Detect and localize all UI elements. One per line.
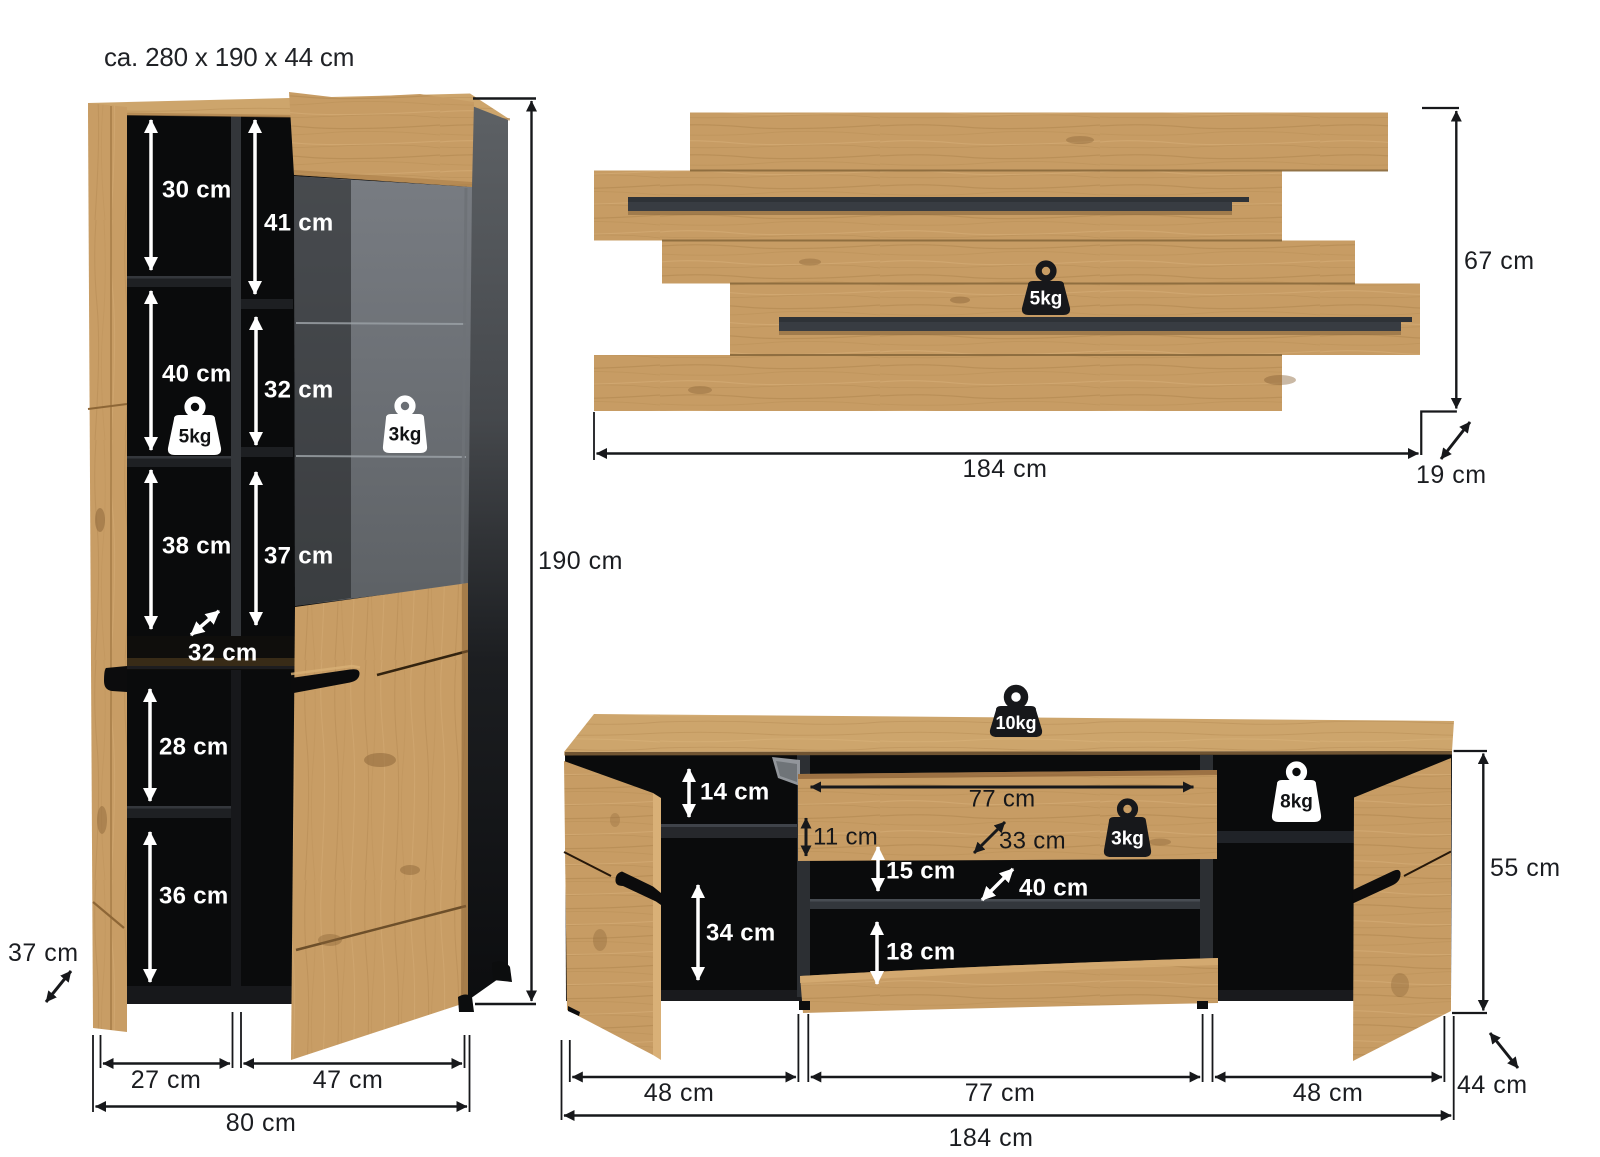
- svg-text:19 cm: 19 cm: [1416, 461, 1487, 489]
- svg-text:5kg: 5kg: [179, 427, 212, 448]
- svg-text:18 cm: 18 cm: [886, 939, 956, 966]
- svg-text:28 cm: 28 cm: [159, 734, 229, 761]
- svg-text:40 cm: 40 cm: [1019, 875, 1089, 902]
- svg-text:8kg: 8kg: [1280, 792, 1313, 813]
- svg-text:190 cm: 190 cm: [538, 547, 623, 575]
- svg-text:48 cm: 48 cm: [1293, 1079, 1364, 1107]
- svg-text:14 cm: 14 cm: [700, 779, 770, 806]
- svg-text:40 cm: 40 cm: [162, 361, 232, 388]
- svg-text:80 cm: 80 cm: [226, 1109, 297, 1137]
- svg-text:32 cm: 32 cm: [264, 377, 334, 404]
- svg-text:3kg: 3kg: [389, 425, 422, 446]
- svg-text:48 cm: 48 cm: [644, 1079, 715, 1107]
- svg-text:67 cm: 67 cm: [1464, 247, 1535, 275]
- svg-text:44 cm: 44 cm: [1457, 1071, 1528, 1099]
- svg-text:27 cm: 27 cm: [131, 1066, 202, 1094]
- svg-text:15 cm: 15 cm: [886, 858, 956, 885]
- svg-text:5kg: 5kg: [1030, 289, 1063, 310]
- svg-text:38 cm: 38 cm: [162, 533, 232, 560]
- svg-text:37 cm: 37 cm: [264, 543, 334, 570]
- svg-text:77 cm: 77 cm: [965, 1079, 1036, 1107]
- svg-text:37 cm: 37 cm: [8, 939, 79, 967]
- svg-text:32 cm: 32 cm: [188, 640, 258, 667]
- svg-text:3kg: 3kg: [1111, 829, 1144, 850]
- svg-text:184 cm: 184 cm: [963, 455, 1048, 483]
- svg-text:10kg: 10kg: [995, 713, 1036, 733]
- svg-text:30 cm: 30 cm: [162, 177, 232, 204]
- svg-text:33 cm: 33 cm: [999, 828, 1066, 855]
- svg-text:11 cm: 11 cm: [813, 824, 878, 851]
- svg-text:36 cm: 36 cm: [159, 883, 229, 910]
- svg-text:184 cm: 184 cm: [949, 1124, 1034, 1152]
- svg-text:41 cm: 41 cm: [264, 210, 334, 237]
- svg-text:ca. 280 x 190 x 44 cm: ca. 280 x 190 x 44 cm: [104, 42, 354, 72]
- svg-text:77 cm: 77 cm: [969, 786, 1036, 813]
- svg-text:55 cm: 55 cm: [1490, 854, 1561, 882]
- svg-text:47 cm: 47 cm: [313, 1066, 384, 1094]
- svg-text:34 cm: 34 cm: [706, 920, 776, 947]
